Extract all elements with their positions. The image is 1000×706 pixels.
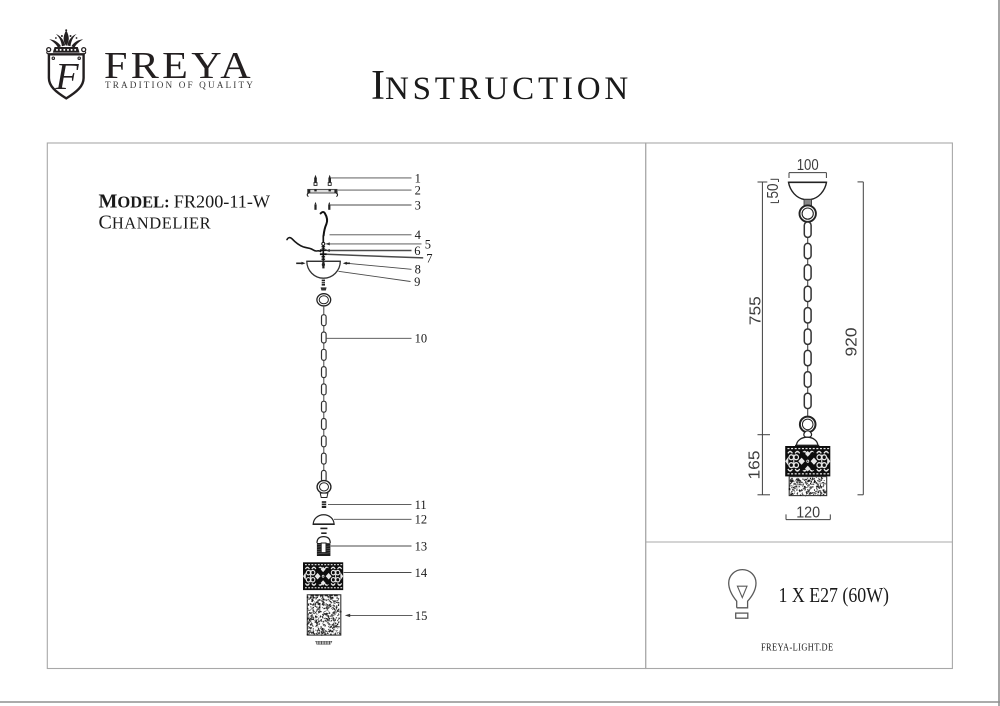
svg-text:5: 5 [425,237,431,251]
svg-text:10: 10 [415,332,428,346]
svg-text:7: 7 [426,251,432,265]
svg-text:15: 15 [415,609,428,623]
svg-text:12: 12 [415,513,428,527]
svg-text:INSTRUCTION: INSTRUCTION [371,63,632,109]
svg-text:TRADITION OF QUALITY: TRADITION OF QUALITY [105,81,255,91]
svg-text:11: 11 [415,498,427,512]
svg-text:3: 3 [415,198,421,212]
svg-text:2: 2 [415,184,421,198]
svg-text:13: 13 [415,539,428,553]
svg-text:9: 9 [414,275,420,289]
svg-text:50: 50 [765,183,782,198]
svg-text:1 X E27 (60W): 1 X E27 (60W) [779,583,890,607]
svg-text:120: 120 [796,505,820,522]
svg-text:MODEL: FR200-11-W: MODEL: FR200-11-W [99,191,271,213]
svg-text:755: 755 [747,296,764,325]
svg-text:100: 100 [797,157,819,174]
svg-text:CHANDELIER: CHANDELIER [99,211,212,233]
svg-text:F: F [54,56,79,98]
svg-text:165: 165 [746,450,763,479]
svg-text:4: 4 [415,228,422,242]
svg-text:920: 920 [844,327,861,356]
svg-text:14: 14 [415,566,428,580]
svg-text:6: 6 [414,244,420,258]
svg-text:FREYA-LIGHT.DE: FREYA-LIGHT.DE [761,642,834,654]
